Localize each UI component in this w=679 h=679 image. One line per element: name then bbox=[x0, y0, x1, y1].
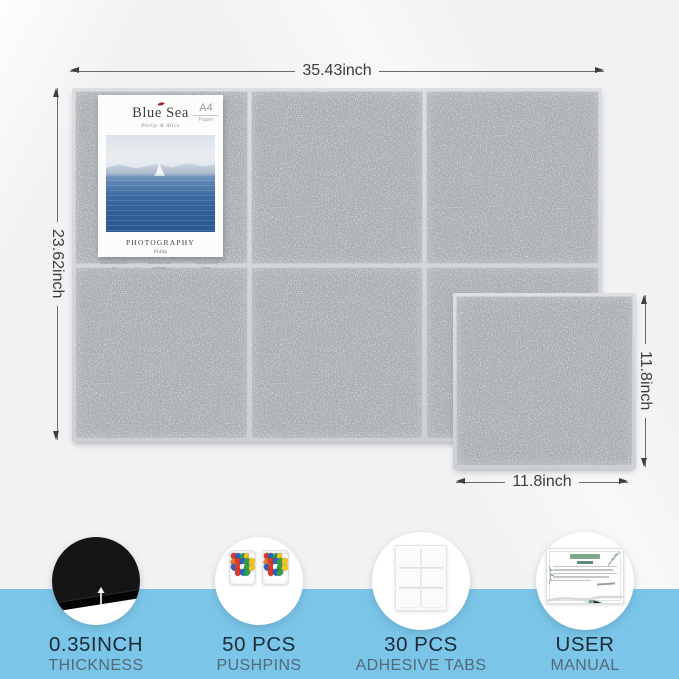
dimension-line bbox=[70, 71, 295, 72]
feature-value: 0.35INCH bbox=[21, 634, 171, 656]
dimension-line bbox=[456, 482, 505, 483]
manual-page bbox=[546, 548, 624, 604]
felt-texture bbox=[456, 296, 633, 466]
dimension-line bbox=[379, 71, 604, 72]
board-width-dimension: 35.43inch bbox=[70, 63, 604, 79]
adhesive-tab bbox=[422, 569, 443, 587]
felt-tile bbox=[426, 91, 599, 264]
adhesive-tab bbox=[422, 549, 443, 567]
feature-label: USER MANUAL bbox=[510, 634, 660, 675]
poster-footnote: Supported by Sony bbox=[189, 260, 223, 270]
user-manual-icon bbox=[536, 532, 634, 630]
board-width-label: 35.43inch bbox=[302, 62, 371, 80]
sea-waves bbox=[106, 175, 215, 232]
footnote-separator: | bbox=[183, 263, 184, 268]
poster: A4 Paper Blue Sea Philip & Alice PHOTOGR… bbox=[98, 95, 223, 257]
board-height-label: 23.62inch bbox=[48, 229, 66, 298]
adhesive-tabs-icon bbox=[372, 532, 470, 630]
sea-photo bbox=[106, 135, 215, 232]
poster-author: Philip bbox=[98, 249, 223, 255]
manual-text-line bbox=[553, 576, 609, 578]
pushpins-icon bbox=[215, 537, 303, 625]
felt-tile bbox=[251, 91, 424, 264]
a4-size-label: A4 bbox=[194, 102, 218, 116]
felt-texture bbox=[251, 267, 424, 440]
feature-user-manual: USER MANUAL bbox=[510, 532, 660, 679]
tile-height-label: 11.8inch bbox=[636, 351, 654, 410]
pushpin-box bbox=[229, 550, 256, 585]
adhesive-tab bbox=[399, 569, 420, 587]
pushpin-boxes bbox=[215, 550, 303, 585]
poster-title: Blue Sea bbox=[132, 105, 189, 122]
thickness-arrow-icon bbox=[96, 587, 106, 615]
feature-name: PUSHPINS bbox=[184, 656, 334, 675]
tile-width-dimension: 11.8inch bbox=[456, 474, 628, 490]
ribbon bbox=[547, 593, 624, 603]
poster-footnotes: Blue sea photo by | Blue sea and sailboa… bbox=[98, 260, 223, 270]
adhesive-sheet bbox=[395, 545, 447, 611]
feature-value: 30 PCS bbox=[346, 634, 496, 656]
poster-footnote: Blue sea photo by bbox=[98, 260, 130, 270]
feature-thickness: 0.35INCH THICKNESS bbox=[21, 532, 171, 679]
adhesive-tab bbox=[399, 549, 420, 567]
tile-width-label: 11.8inch bbox=[512, 473, 571, 491]
feature-name: THICKNESS bbox=[21, 656, 171, 675]
dimension-line bbox=[645, 295, 646, 344]
felt-tile bbox=[75, 267, 248, 440]
adhesive-tab bbox=[422, 589, 443, 607]
single-felt-tile bbox=[453, 293, 636, 469]
felt-texture bbox=[251, 91, 424, 264]
leaf-icon bbox=[604, 550, 622, 568]
feature-pushpins: 50 PCS PUSHPINS bbox=[184, 532, 334, 679]
felt-texture bbox=[75, 267, 248, 440]
tile-height-dimension: 11.8inch bbox=[637, 295, 653, 467]
manual-signature bbox=[597, 582, 615, 585]
feature-adhesive-tabs: 30 PCS ADHESIVE TABS bbox=[346, 532, 496, 679]
felt-texture bbox=[426, 91, 599, 264]
sailboat-icon bbox=[156, 163, 164, 174]
a4-paper-badge: A4 Paper bbox=[194, 102, 218, 123]
a4-word-label: Paper bbox=[194, 117, 218, 123]
manual-text-line bbox=[553, 569, 613, 571]
dimension-line bbox=[57, 306, 58, 440]
poster-title-text: Blue Sea bbox=[132, 105, 189, 121]
thickness-icon bbox=[52, 537, 140, 625]
dimension-line bbox=[579, 482, 628, 483]
feature-name: ADHESIVE TABS bbox=[346, 656, 496, 675]
adhesive-tab-grid bbox=[399, 549, 443, 607]
product-image: A4 Paper Blue Sea Philip & Alice PHOTOGR… bbox=[0, 0, 679, 679]
leaf-icon bbox=[547, 565, 559, 585]
manual-title-line bbox=[577, 561, 593, 564]
manual-header bbox=[570, 554, 600, 559]
feature-value: USER bbox=[510, 634, 660, 656]
sailboat-hull bbox=[154, 174, 165, 176]
dimension-line bbox=[57, 88, 58, 222]
feature-name: MANUAL bbox=[510, 656, 660, 675]
manual-text-line bbox=[553, 573, 617, 575]
poster-subtitle: Philip & Alice bbox=[98, 123, 223, 129]
poster-footnote: Blue sea and sailboat bbox=[141, 260, 179, 270]
adhesive-tab bbox=[399, 589, 420, 607]
dimension-line bbox=[645, 418, 646, 467]
feature-label: 50 PCS PUSHPINS bbox=[184, 634, 334, 675]
feature-label: 0.35INCH THICKNESS bbox=[21, 634, 171, 675]
pushpin-box bbox=[262, 550, 289, 585]
felt-tile bbox=[456, 296, 633, 466]
poster-category: PHOTOGRAPHY bbox=[98, 238, 223, 247]
footnote-separator: | bbox=[135, 263, 136, 268]
felt-tile bbox=[251, 267, 424, 440]
feature-value: 50 PCS bbox=[184, 634, 334, 656]
board-height-dimension: 23.62inch bbox=[49, 88, 65, 440]
feature-label: 30 PCS ADHESIVE TABS bbox=[346, 634, 496, 675]
